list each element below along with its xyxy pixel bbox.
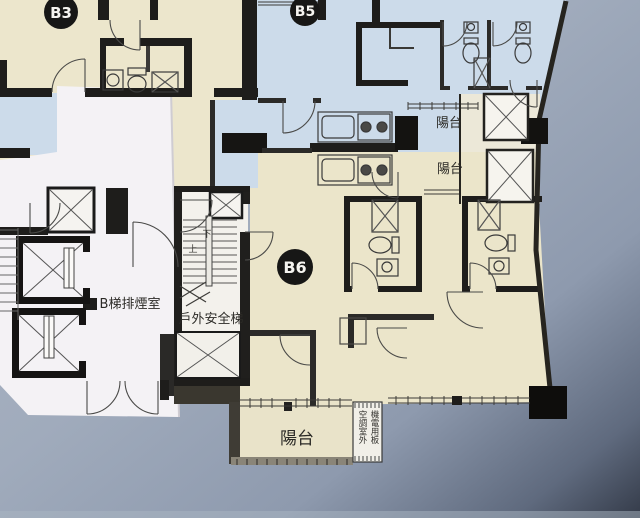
stair-rail (206, 216, 212, 286)
wall (356, 80, 408, 86)
stair-wall (240, 232, 250, 382)
wall (140, 38, 188, 46)
burner-icon (377, 165, 387, 175)
wall (344, 196, 350, 292)
stair-wall (174, 378, 250, 386)
wall (210, 100, 215, 192)
wall (462, 286, 470, 292)
wall (98, 0, 109, 20)
outdoor-stair-label: 戶外安全梯 (178, 311, 243, 327)
wall (313, 98, 321, 103)
wall (160, 380, 169, 400)
burner-icon (361, 122, 371, 132)
floor-plan-svg: B3 B5 B6 B梯排煙室 戶外安全梯 陽台 陽台 陽台 機電用板 空調室外 … (0, 0, 640, 518)
wall (0, 88, 52, 97)
balcony-south-label: 陽台 (280, 429, 314, 449)
wall (348, 314, 434, 320)
window-pier (452, 396, 462, 405)
balcony-wall (229, 402, 240, 464)
corridor-pocket-floor (0, 93, 57, 155)
paper-bottom-edge (0, 511, 640, 518)
wall-column (395, 116, 418, 150)
stair-down-label: 下 (202, 230, 211, 240)
burner-icon (361, 165, 371, 175)
wall (310, 330, 316, 406)
wall (526, 86, 542, 90)
smoke-room-label: B梯排煙室 (100, 296, 161, 312)
wall (344, 196, 422, 202)
wall (356, 22, 362, 84)
wall (184, 38, 192, 94)
balcony-sill (231, 457, 353, 465)
wall (150, 0, 158, 20)
equipment-label-line2: 空調室外 (357, 409, 367, 445)
floor-plan-photo: B3 B5 B6 B梯排煙室 戶外安全梯 陽台 陽台 陽台 機電用板 空調室外 … (0, 0, 640, 518)
unit-b3-label: B3 (50, 4, 72, 22)
wall (348, 314, 354, 348)
stair-up-label: 上 (188, 244, 197, 255)
wall (462, 196, 468, 292)
unit-b6-label: B6 (283, 258, 306, 277)
wall (372, 0, 380, 22)
wall (378, 286, 422, 292)
balcony-b5-label: 陽台 (436, 116, 462, 131)
burner-icon (377, 122, 387, 132)
wall (344, 286, 352, 292)
corner-column (529, 386, 567, 419)
wall (258, 98, 286, 103)
wall-column (106, 188, 128, 234)
wall (0, 148, 30, 158)
equipment-label-line1: 機電用板 (369, 409, 379, 445)
wall (0, 60, 7, 90)
wall-column (222, 133, 267, 153)
wall (146, 46, 150, 72)
unit-b5-label: B5 (295, 4, 315, 20)
balcony-b6-label: 陽台 (437, 162, 463, 177)
wall (262, 148, 312, 153)
wall (416, 196, 422, 292)
wall (440, 86, 450, 90)
wall (356, 22, 440, 28)
wall (496, 286, 542, 292)
wall (242, 0, 257, 100)
wall (310, 143, 398, 152)
